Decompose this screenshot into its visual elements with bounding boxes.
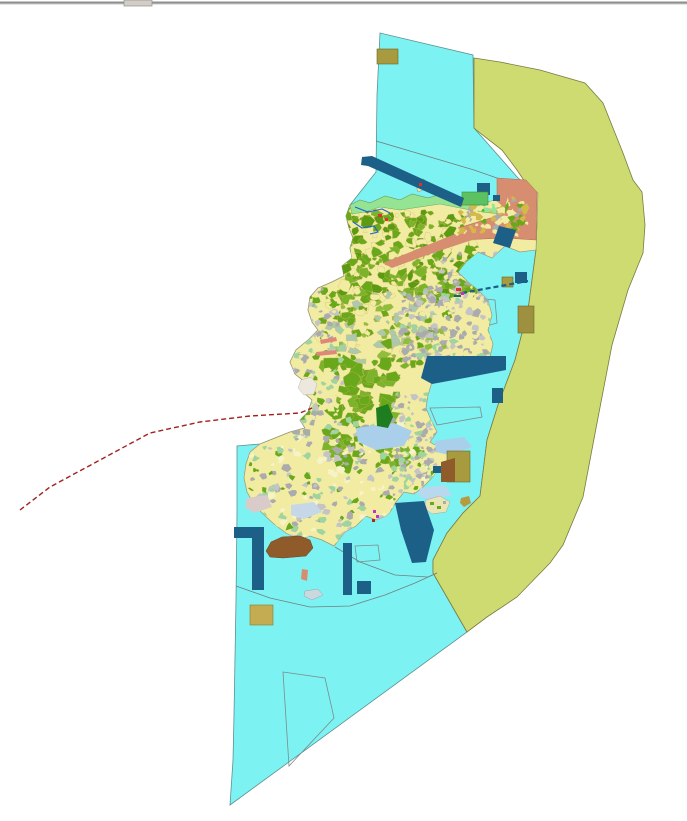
navy-bar-south [343, 543, 352, 595]
khaki-block-north [377, 49, 398, 64]
islet-green-speck [437, 506, 441, 509]
brown-block-east [441, 458, 455, 482]
red-speck [372, 519, 375, 522]
khaki-block-east-2 [518, 306, 534, 333]
window-splitter-highlight [0, 4, 687, 5]
window-splitter-bar [0, 2, 687, 4]
navy-bar-west [252, 527, 264, 590]
navy-speck-ne [493, 195, 500, 201]
red-speck [385, 218, 388, 221]
navy-square-south [357, 581, 371, 594]
harbor-magenta [461, 292, 464, 295]
app-window [0, 0, 687, 821]
salmon-islet [301, 569, 308, 581]
red-speck [378, 214, 382, 217]
islet-gray-speck [443, 501, 446, 504]
magenta-speck [376, 515, 379, 518]
navy-dot-coast [433, 466, 442, 473]
navy-block-southeast [492, 388, 503, 403]
harbor-navy [454, 295, 461, 297]
red-speck [419, 183, 422, 186]
islet-green-speck [430, 502, 434, 505]
magenta-speck [373, 510, 376, 513]
green-block-northeast [462, 192, 488, 205]
harbor-red [456, 288, 461, 291]
khaki-block-south [250, 605, 273, 625]
splitter-grip-handle[interactable] [124, 0, 152, 6]
map-canvas[interactable] [0, 0, 687, 821]
